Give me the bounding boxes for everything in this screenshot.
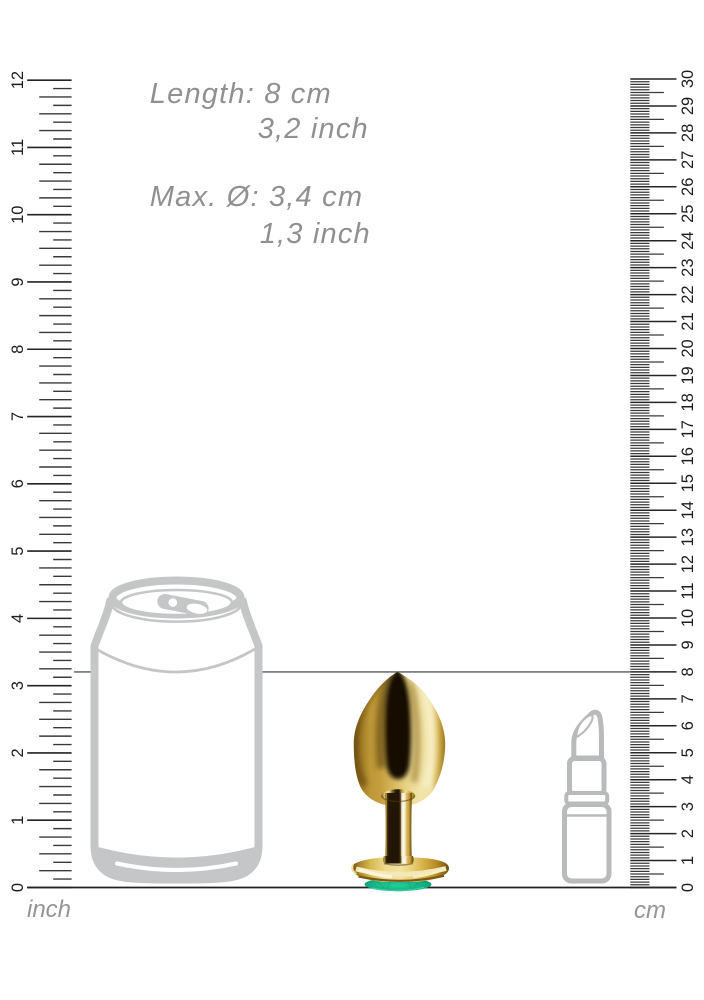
svg-text:8: 8 [9,345,27,354]
svg-text:Length: 8 cm: Length: 8 cm [150,78,332,110]
svg-text:11: 11 [9,139,27,156]
svg-text:Max. Ø: 3,4 cm: Max. Ø: 3,4 cm [150,181,363,213]
svg-text:26: 26 [679,178,697,196]
svg-text:24: 24 [679,232,697,250]
svg-text:10: 10 [679,609,697,627]
svg-text:25: 25 [679,205,697,223]
svg-text:19: 19 [679,366,697,384]
svg-text:0: 0 [679,883,697,892]
svg-text:6: 6 [9,479,27,488]
svg-text:cm: cm [634,897,666,924]
svg-text:12: 12 [679,555,697,573]
svg-text:11: 11 [679,582,697,599]
svg-text:6: 6 [679,721,697,730]
svg-text:4: 4 [9,614,27,623]
svg-text:13: 13 [679,528,697,546]
svg-text:9: 9 [9,277,27,286]
svg-text:15: 15 [679,474,697,492]
svg-text:27: 27 [679,151,697,169]
svg-text:16: 16 [679,447,697,465]
svg-text:1,3 inch: 1,3 inch [260,218,371,250]
svg-text:20: 20 [679,339,697,357]
svg-text:23: 23 [679,258,697,276]
svg-text:1: 1 [9,816,27,825]
svg-text:8: 8 [679,667,697,676]
svg-text:0: 0 [9,883,27,892]
svg-text:4: 4 [679,775,697,784]
svg-text:21: 21 [679,312,697,330]
svg-text:1: 1 [679,856,697,865]
svg-text:5: 5 [679,748,697,757]
svg-text:30: 30 [679,70,697,88]
svg-text:14: 14 [679,501,697,519]
svg-text:10: 10 [9,206,27,224]
svg-text:7: 7 [9,412,27,421]
svg-text:3: 3 [679,802,697,811]
svg-text:9: 9 [679,640,697,649]
svg-text:inch: inch [27,896,71,923]
svg-text:3,2 inch: 3,2 inch [258,113,369,145]
svg-text:17: 17 [679,420,697,438]
svg-text:12: 12 [9,71,27,89]
svg-text:28: 28 [679,124,697,142]
svg-text:3: 3 [9,681,27,690]
svg-text:29: 29 [679,97,697,115]
svg-text:2: 2 [679,829,697,838]
svg-text:2: 2 [9,748,27,757]
svg-text:5: 5 [9,547,27,556]
svg-text:18: 18 [679,393,697,411]
svg-text:22: 22 [679,285,697,303]
svg-text:7: 7 [679,694,697,703]
